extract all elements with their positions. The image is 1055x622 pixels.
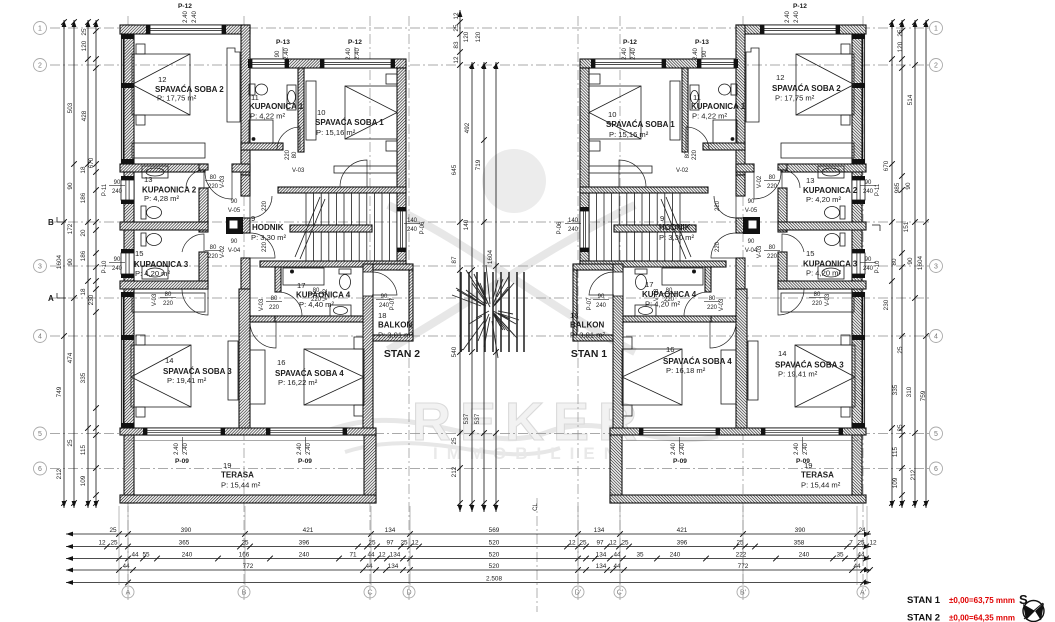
svg-text:212: 212: [56, 468, 63, 479]
svg-text:396: 396: [677, 540, 688, 547]
svg-text:BALKON: BALKON: [570, 321, 604, 330]
svg-text:474: 474: [67, 352, 74, 363]
svg-text:1: 1: [934, 26, 938, 33]
svg-text:25: 25: [857, 540, 865, 547]
svg-text:220: 220: [715, 241, 721, 252]
svg-text:90: 90: [67, 182, 74, 190]
svg-text:P-11: P-11: [102, 183, 108, 196]
svg-text:19: 19: [223, 461, 231, 470]
svg-text:12: 12: [453, 12, 460, 20]
svg-text:80: 80: [210, 245, 217, 251]
svg-text:134: 134: [385, 527, 396, 534]
svg-text:220: 220: [812, 301, 823, 307]
svg-text:C: C: [367, 590, 372, 597]
svg-text:90: 90: [748, 199, 755, 205]
svg-text:2.40: 2.40: [346, 48, 352, 60]
svg-text:240: 240: [112, 189, 123, 195]
svg-text:P-12: P-12: [793, 3, 807, 10]
svg-text:240: 240: [299, 552, 310, 559]
svg-text:IMMOBILIEN: IMMOBILIEN: [433, 444, 625, 463]
svg-text:12: 12: [158, 75, 166, 84]
svg-text:2.40: 2.40: [297, 443, 303, 455]
svg-text:25: 25: [579, 540, 587, 547]
svg-text:B: B: [242, 590, 247, 597]
svg-text:P: 17,75 m²: P: 17,75 m²: [157, 94, 197, 103]
svg-text:15: 15: [806, 249, 814, 258]
svg-text:230: 230: [883, 299, 890, 310]
svg-text:B: B: [48, 218, 54, 227]
svg-text:220: 220: [715, 200, 721, 211]
svg-text:STAN 2: STAN 2: [907, 613, 940, 622]
svg-text:749: 749: [56, 386, 63, 397]
svg-text:2.40: 2.40: [183, 11, 189, 23]
svg-text:335: 335: [892, 384, 899, 395]
svg-text:V-03: V-03: [152, 293, 158, 306]
svg-text:2: 2: [38, 63, 42, 70]
svg-text:365: 365: [179, 540, 190, 547]
svg-text:2.40: 2.40: [693, 48, 699, 60]
svg-text:220: 220: [767, 184, 778, 190]
svg-text:120: 120: [81, 40, 88, 51]
svg-text:428: 428: [81, 110, 88, 121]
svg-text:KUPAONICA 2: KUPAONICA 2: [803, 186, 858, 195]
svg-text:80: 80: [814, 292, 821, 298]
svg-text:P: 4,20 m²: P: 4,20 m²: [806, 195, 841, 204]
svg-text:134: 134: [596, 552, 607, 559]
svg-text:P: 3,30 m²: P: 3,30 m²: [659, 233, 694, 242]
svg-text:396: 396: [299, 540, 310, 547]
svg-text:25: 25: [453, 24, 460, 32]
svg-text:97: 97: [386, 540, 394, 547]
svg-text:220: 220: [767, 254, 778, 260]
svg-text:11: 11: [693, 93, 701, 102]
svg-text:2.40: 2.40: [183, 443, 189, 455]
svg-text:HODNIK: HODNIK: [659, 223, 691, 232]
svg-text:P: 4,28 m²: P: 4,28 m²: [144, 194, 179, 203]
svg-text:P: 4,22 m²: P: 4,22 m²: [692, 112, 727, 121]
svg-text:421: 421: [677, 527, 688, 534]
svg-text:140: 140: [407, 218, 418, 224]
svg-text:12: 12: [98, 540, 106, 547]
svg-text:KUPAONICA 3: KUPAONICA 3: [134, 260, 189, 269]
svg-text:P-12: P-12: [348, 39, 362, 46]
svg-text:90: 90: [114, 257, 121, 263]
svg-text:SPAVAĆA SOBA 3: SPAVAĆA SOBA 3: [163, 367, 232, 376]
svg-text:P-10: P-10: [102, 260, 108, 273]
svg-text:71: 71: [349, 552, 357, 559]
svg-text:V-03: V-03: [825, 293, 831, 306]
svg-text:140: 140: [568, 218, 579, 224]
svg-text:220: 220: [269, 305, 280, 311]
svg-text:P-12: P-12: [623, 39, 637, 46]
svg-text:134: 134: [594, 527, 605, 534]
svg-text:2.40: 2.40: [671, 443, 677, 455]
svg-text:90: 90: [702, 50, 708, 57]
svg-text:2.40: 2.40: [794, 443, 800, 455]
svg-text:SPAVAĆA SOBA 1: SPAVAĆA SOBA 1: [606, 120, 675, 129]
svg-text:2.40: 2.40: [803, 443, 809, 455]
svg-text:80: 80: [891, 258, 898, 266]
svg-text:80: 80: [666, 288, 673, 294]
svg-text:P-09: P-09: [673, 458, 687, 465]
svg-text:4: 4: [38, 334, 42, 341]
svg-text:220: 220: [692, 149, 698, 160]
svg-text:25: 25: [81, 28, 88, 36]
svg-text:80: 80: [685, 151, 691, 158]
svg-text:P: 15,16 m²: P: 15,16 m²: [609, 130, 649, 139]
svg-text:SPAVAĆA SOBA 3: SPAVAĆA SOBA 3: [775, 361, 844, 370]
svg-text:80: 80: [210, 175, 217, 181]
svg-text:166: 166: [239, 552, 250, 559]
svg-text:87: 87: [451, 256, 458, 264]
svg-text:P-06: P-06: [420, 221, 426, 234]
svg-text:P-09: P-09: [298, 458, 312, 465]
svg-text:9: 9: [251, 214, 255, 223]
svg-text:P: 15,16 m²: P: 15,16 m²: [316, 128, 356, 137]
svg-text:537: 537: [463, 413, 470, 424]
svg-text:310: 310: [906, 386, 913, 397]
svg-text:12: 12: [378, 552, 386, 559]
svg-text:569: 569: [489, 527, 500, 534]
svg-text:12: 12: [609, 540, 617, 547]
svg-text:SPAVAĆA SOBA 4: SPAVAĆA SOBA 4: [275, 369, 344, 378]
svg-text:16: 16: [666, 345, 674, 354]
svg-text:2.508: 2.508: [486, 576, 502, 583]
svg-text:25: 25: [67, 439, 74, 447]
svg-text:P: 16,22 m²: P: 16,22 m²: [278, 378, 318, 387]
svg-text:6: 6: [38, 466, 42, 473]
svg-text:134: 134: [388, 563, 399, 570]
svg-text:18: 18: [570, 311, 578, 320]
svg-text:772: 772: [243, 563, 254, 570]
svg-text:240: 240: [182, 552, 193, 559]
svg-text:90: 90: [275, 50, 281, 57]
svg-text:90: 90: [381, 294, 388, 300]
svg-text:97: 97: [596, 540, 604, 547]
svg-text:24: 24: [858, 527, 866, 534]
svg-text:V-03: V-03: [719, 298, 725, 311]
svg-text:80: 80: [292, 151, 298, 158]
svg-text:6: 6: [934, 466, 938, 473]
svg-text:719: 719: [475, 159, 482, 170]
svg-text:240: 240: [596, 303, 607, 309]
svg-text:2.40: 2.40: [192, 11, 198, 23]
svg-text:120: 120: [897, 41, 904, 52]
svg-text:90: 90: [231, 199, 238, 205]
svg-text:P-06: P-06: [557, 221, 563, 234]
svg-text:P: 3,30 m²: P: 3,30 m²: [251, 233, 286, 242]
svg-text:240: 240: [863, 266, 874, 272]
svg-text:80: 80: [769, 175, 776, 181]
svg-text:220: 220: [285, 149, 291, 160]
svg-text:212: 212: [910, 469, 917, 480]
svg-text:17: 17: [645, 280, 653, 289]
svg-text:172: 172: [67, 223, 74, 234]
svg-text:9: 9: [660, 214, 664, 223]
svg-text:V-02: V-02: [676, 168, 689, 174]
svg-text:25: 25: [109, 527, 117, 534]
svg-text:25: 25: [451, 437, 458, 445]
svg-text:V-04: V-04: [228, 248, 241, 254]
svg-text:134: 134: [596, 563, 607, 570]
svg-text:KUPAONICA 1: KUPAONICA 1: [691, 102, 746, 111]
svg-text:25: 25: [897, 346, 904, 354]
svg-text:90: 90: [748, 239, 755, 245]
svg-text:A': A': [860, 590, 866, 597]
svg-text:P: 17,75 m²: P: 17,75 m²: [775, 94, 815, 103]
svg-text:514: 514: [907, 94, 914, 105]
svg-text:17: 17: [297, 281, 305, 290]
svg-text:240: 240: [799, 552, 810, 559]
svg-text:134: 134: [390, 552, 401, 559]
svg-text:P: 4,22 m²: P: 4,22 m²: [250, 112, 285, 121]
svg-text:240: 240: [863, 189, 874, 195]
svg-text:12: 12: [568, 540, 576, 547]
svg-text:2.40: 2.40: [174, 443, 180, 455]
svg-text:P: 3,01 m²: P: 3,01 m²: [570, 331, 605, 340]
svg-text:V-05: V-05: [228, 208, 241, 214]
svg-text:492: 492: [464, 122, 471, 133]
svg-text:P: 15,44 m²: P: 15,44 m²: [801, 481, 841, 490]
svg-text:90: 90: [865, 257, 872, 263]
svg-text:5: 5: [38, 431, 42, 438]
svg-text:20: 20: [80, 229, 87, 237]
svg-text:C': C': [617, 590, 623, 597]
svg-text:240: 240: [112, 266, 123, 272]
svg-text:12: 12: [869, 540, 877, 547]
svg-text:TERASA: TERASA: [221, 471, 254, 480]
svg-text:220: 220: [262, 200, 268, 211]
svg-text:±0,00=64,35 mnm: ±0,00=64,35 mnm: [949, 614, 1015, 622]
svg-text:V-02: V-02: [220, 245, 226, 258]
svg-text:220: 220: [208, 254, 219, 260]
svg-text:220: 220: [262, 241, 268, 252]
svg-text:12: 12: [411, 540, 419, 547]
svg-text:503: 503: [67, 102, 74, 113]
svg-text:212: 212: [451, 466, 458, 477]
svg-text:P: 3,01 m²: P: 3,01 m²: [378, 331, 413, 340]
svg-text:115: 115: [892, 446, 899, 457]
svg-text:90: 90: [114, 180, 121, 186]
svg-text:2.40: 2.40: [680, 443, 686, 455]
svg-text:44: 44: [122, 563, 130, 570]
svg-text:186: 186: [80, 192, 87, 203]
svg-text:KUPAONICA 3: KUPAONICA 3: [803, 260, 858, 269]
svg-text:14: 14: [165, 356, 173, 365]
svg-text:B': B': [740, 590, 746, 597]
svg-text:V-02: V-02: [757, 175, 763, 188]
svg-text:P: 16,18 m²: P: 16,18 m²: [666, 366, 706, 375]
svg-text:1604: 1604: [56, 254, 63, 269]
svg-text:STAN 1: STAN 1: [907, 595, 941, 606]
svg-text:2: 2: [934, 63, 938, 70]
svg-text:90: 90: [598, 294, 605, 300]
svg-text:D: D: [406, 590, 411, 597]
svg-text:16: 16: [277, 358, 285, 367]
svg-text:2.40: 2.40: [355, 48, 361, 60]
svg-text:670: 670: [883, 160, 890, 171]
svg-text:1604: 1604: [917, 255, 924, 270]
svg-text:V-04: V-04: [745, 248, 758, 254]
svg-text:25: 25: [621, 540, 629, 547]
svg-text:3: 3: [38, 264, 42, 271]
svg-text:P: 19,41 m²: P: 19,41 m²: [167, 376, 207, 385]
svg-text:V-05: V-05: [745, 208, 758, 214]
svg-text:10: 10: [608, 110, 616, 119]
svg-text:120: 120: [463, 31, 470, 42]
svg-text:15: 15: [135, 249, 143, 258]
svg-text:90: 90: [907, 257, 914, 265]
svg-text:140: 140: [463, 219, 470, 230]
svg-text:1: 1: [38, 26, 42, 33]
svg-text:220: 220: [208, 184, 219, 190]
svg-text:109: 109: [892, 477, 899, 488]
svg-text:V-02: V-02: [323, 288, 329, 301]
svg-text:P-13: P-13: [276, 39, 290, 46]
svg-text:520: 520: [489, 552, 500, 559]
svg-text:80: 80: [165, 292, 172, 298]
svg-text:P: 15,44 m²: P: 15,44 m²: [221, 481, 261, 490]
svg-text:520: 520: [489, 540, 500, 547]
svg-text:520: 520: [489, 563, 500, 570]
svg-text:STAN 2: STAN 2: [384, 349, 420, 360]
svg-text:83: 83: [453, 41, 460, 49]
svg-text:220: 220: [163, 301, 174, 307]
svg-text:759: 759: [920, 390, 927, 401]
svg-text:80: 80: [769, 245, 776, 251]
svg-text:P-09: P-09: [175, 458, 189, 465]
svg-text:90: 90: [67, 258, 74, 266]
svg-text:222: 222: [736, 552, 747, 559]
svg-text:230: 230: [88, 294, 95, 305]
svg-text:HODNIK: HODNIK: [252, 223, 284, 232]
svg-text:V-03: V-03: [259, 298, 265, 311]
svg-text:390: 390: [181, 527, 192, 534]
svg-text:90: 90: [905, 182, 912, 190]
svg-text:2.40: 2.40: [785, 11, 791, 23]
svg-text:18: 18: [378, 311, 386, 320]
svg-text:P-10: P-10: [875, 260, 881, 273]
svg-text:±0,00=63,75 mnm: ±0,00=63,75 mnm: [949, 596, 1015, 605]
svg-text:358: 358: [794, 540, 805, 547]
svg-text:2.40: 2.40: [284, 48, 290, 60]
svg-text:P-13: P-13: [695, 39, 709, 46]
svg-text:P: 4,20 m²: P: 4,20 m²: [645, 300, 680, 309]
svg-text:11: 11: [251, 93, 259, 102]
svg-text:SPAVAĆA SOBA 4: SPAVAĆA SOBA 4: [663, 357, 732, 366]
svg-text:240: 240: [407, 227, 418, 233]
svg-text:35: 35: [836, 552, 844, 559]
svg-text:10: 10: [317, 108, 325, 117]
svg-text:P-09: P-09: [796, 458, 810, 465]
svg-text:186: 186: [80, 250, 87, 261]
svg-text:V-03: V-03: [220, 175, 226, 188]
svg-text:3: 3: [934, 264, 938, 271]
svg-text:220: 220: [664, 297, 675, 303]
svg-text:SPAVAĆA SOBA 2: SPAVAĆA SOBA 2: [772, 84, 841, 93]
svg-text:P-07: P-07: [390, 297, 396, 310]
svg-text:115: 115: [80, 444, 87, 455]
svg-text:D': D': [575, 590, 581, 597]
svg-text:335: 335: [80, 372, 87, 383]
svg-text:240: 240: [568, 227, 579, 233]
svg-text:2.40: 2.40: [631, 48, 637, 60]
svg-text:18: 18: [80, 166, 87, 174]
svg-text:80: 80: [313, 288, 320, 294]
svg-text:V-03: V-03: [654, 288, 660, 301]
svg-text:STAN 1: STAN 1: [571, 349, 607, 360]
svg-text:645: 645: [451, 164, 458, 175]
svg-text:80: 80: [709, 296, 716, 302]
svg-text:4: 4: [934, 334, 938, 341]
svg-text:35: 35: [636, 552, 644, 559]
svg-text:540: 540: [451, 346, 458, 357]
svg-text:SPAVAĆA SOBA 1: SPAVAĆA SOBA 1: [315, 118, 384, 127]
svg-text:7: 7: [849, 540, 853, 547]
svg-text:CL: CL: [533, 503, 539, 511]
svg-text:2.40: 2.40: [622, 48, 628, 60]
svg-text:V-03: V-03: [757, 245, 763, 258]
svg-text:90: 90: [231, 239, 238, 245]
svg-text:537: 537: [474, 413, 481, 424]
svg-text:P-07: P-07: [587, 297, 593, 310]
svg-text:25: 25: [110, 540, 118, 547]
svg-text:240: 240: [670, 552, 681, 559]
svg-text:TERASA: TERASA: [801, 471, 834, 480]
svg-text:80: 80: [271, 296, 278, 302]
svg-text:P-12: P-12: [178, 3, 192, 10]
svg-text:P: 4,20 m²: P: 4,20 m²: [135, 269, 170, 278]
svg-text:390: 390: [795, 527, 806, 534]
svg-text:13: 13: [806, 176, 814, 185]
svg-text:A: A: [126, 590, 131, 597]
svg-text:90: 90: [865, 180, 872, 186]
svg-text:12: 12: [453, 56, 460, 64]
svg-text:44: 44: [365, 563, 373, 570]
svg-text:BALKON: BALKON: [378, 321, 412, 330]
svg-text:13: 13: [144, 175, 152, 184]
svg-text:240: 240: [379, 303, 390, 309]
svg-text:25: 25: [368, 540, 376, 547]
svg-text:44: 44: [131, 552, 139, 559]
svg-text:25: 25: [897, 424, 904, 432]
svg-text:220: 220: [707, 305, 718, 311]
svg-text:109: 109: [80, 475, 87, 486]
svg-text:14: 14: [778, 349, 786, 358]
svg-text:18: 18: [80, 288, 87, 296]
svg-text:1604: 1604: [487, 249, 494, 264]
svg-text:P: 19,41 m²: P: 19,41 m²: [778, 370, 818, 379]
svg-text:220: 220: [311, 297, 322, 303]
svg-text:A: A: [48, 294, 54, 303]
svg-text:120: 120: [475, 31, 482, 42]
svg-text:12: 12: [776, 73, 784, 82]
svg-text:5: 5: [934, 431, 938, 438]
svg-text:P: 4,20 m²: P: 4,20 m²: [806, 269, 841, 278]
svg-text:KUPAONICA 1: KUPAONICA 1: [249, 102, 304, 111]
svg-text:V-03: V-03: [292, 168, 305, 174]
svg-text:2.40: 2.40: [794, 11, 800, 23]
svg-text:2.40: 2.40: [306, 443, 312, 455]
svg-text:P-11: P-11: [875, 183, 881, 196]
svg-text:151: 151: [903, 221, 910, 232]
svg-text:421: 421: [303, 527, 314, 534]
